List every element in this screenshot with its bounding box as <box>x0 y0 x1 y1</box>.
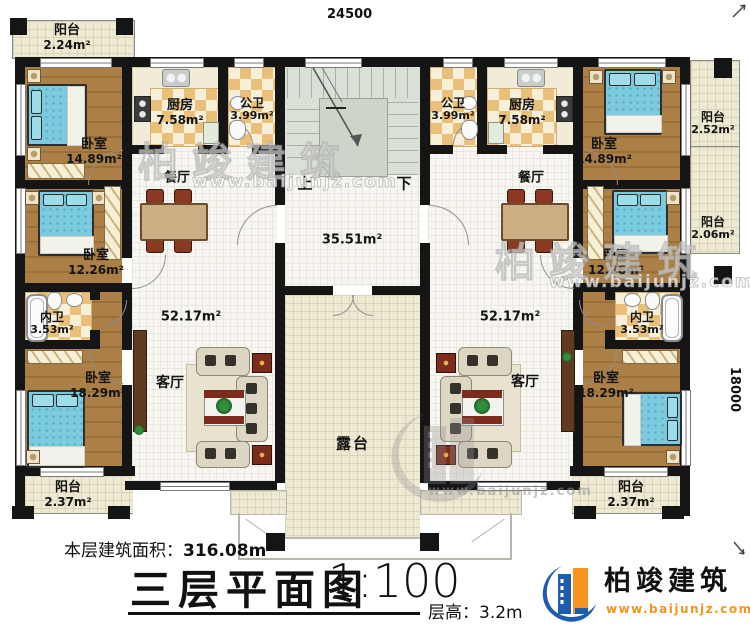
brand-name: 柏竣建筑 <box>604 568 732 595</box>
room-area: 3.53m² <box>620 325 663 337</box>
wall-segment <box>573 283 690 292</box>
wall-segment <box>218 57 228 154</box>
room-label-r-balcony2: 阳台 2.06m² <box>691 216 734 242</box>
room-area: 52.17m² <box>480 311 540 326</box>
wall-segment <box>122 180 132 258</box>
window <box>504 58 558 68</box>
wall-segment <box>573 180 583 258</box>
nightstand <box>27 147 41 161</box>
window <box>150 58 204 68</box>
pillow <box>31 116 42 140</box>
pillow <box>634 73 656 86</box>
wall-segment <box>372 286 420 295</box>
coffee-table-band <box>462 390 502 398</box>
sink <box>624 293 641 307</box>
balcony-pillar <box>714 266 732 284</box>
room-label-r-dining: 餐厅 <box>518 172 544 187</box>
balcony-pillar <box>108 506 130 519</box>
bathtub <box>661 294 683 342</box>
pillow <box>66 194 87 206</box>
wall-segment <box>122 288 132 350</box>
wall-segment <box>420 57 430 154</box>
floor-plan: 阳台 2.24m² 卧室 14.89m² 厨房 7.58m² 公卫 3.99m²… <box>0 0 750 635</box>
coffee-table-band <box>204 390 244 398</box>
watermark-logo-icon <box>372 408 502 513</box>
nightstand <box>25 191 39 205</box>
room-area: 7.58m² <box>156 114 203 127</box>
sofa-pillow <box>246 423 257 434</box>
toilet <box>645 292 660 310</box>
room-label-r-bedroom3: 卧室 18.29m² <box>578 372 634 400</box>
room-label-r-balcony-b: 阳台 2.37m² <box>607 481 654 509</box>
window <box>160 482 230 491</box>
pillow <box>667 420 678 441</box>
sofa-pillow <box>205 355 216 366</box>
sofa <box>196 441 250 468</box>
wall-segment <box>90 283 100 300</box>
tv-cabinet <box>561 330 575 432</box>
bed <box>27 84 87 146</box>
room-name: 客厅 <box>511 375 539 391</box>
wall-segment <box>275 154 285 205</box>
room-name: 餐厅 <box>518 172 544 187</box>
nightstand <box>666 191 680 205</box>
room-name: 厨房 <box>156 99 203 114</box>
dimension-top: 24500 <box>327 7 372 22</box>
room-area: 14.89m² <box>576 153 632 166</box>
balcony-pillar <box>662 506 684 519</box>
room-area: 2.06m² <box>691 230 734 242</box>
pillow <box>617 194 638 206</box>
nightstand <box>662 70 676 84</box>
room-label-r-bath: 公卫 3.99m² <box>431 97 474 123</box>
window <box>681 188 691 254</box>
bed <box>604 69 662 135</box>
wall-segment <box>543 145 573 154</box>
sofa-pillow <box>225 355 236 366</box>
sofa <box>458 347 512 376</box>
dining-table <box>140 203 208 241</box>
sofa-pillow <box>450 383 461 394</box>
window <box>443 58 473 68</box>
room-label-r-balcony1: 阳台 2.52m² <box>691 111 734 137</box>
room-name: 卧室 <box>68 249 124 264</box>
room-label-l-bedroom2: 卧室 12.26m² <box>68 249 124 277</box>
room-label-l-kitchen: 厨房 7.58m² <box>156 99 203 127</box>
sofa-pillow <box>246 383 257 394</box>
wall-segment <box>122 57 132 183</box>
bed-sheet <box>606 115 662 133</box>
window <box>604 467 668 477</box>
wall-segment <box>285 286 333 295</box>
stove <box>556 96 573 122</box>
wall-segment <box>275 243 285 483</box>
plant-icon <box>562 352 572 362</box>
window <box>681 84 691 156</box>
pillow <box>609 73 631 86</box>
room-label-l-dining: 餐厅 <box>164 172 190 187</box>
room-label-terrace: 露台 <box>336 436 370 453</box>
coffee-table-band <box>204 416 244 424</box>
room-name: 卧室 <box>70 372 126 387</box>
sofa-pillow <box>487 355 498 366</box>
room-area: 2.52m² <box>691 125 734 137</box>
nightstand <box>666 450 680 464</box>
dining-table <box>501 203 569 241</box>
stair-up-label: 上 <box>297 176 312 193</box>
brand-logo: 柏竣建筑 www.baijunjz.com <box>536 560 741 630</box>
stair-down: 下 <box>396 176 411 193</box>
closet <box>622 350 678 364</box>
pillow <box>43 194 64 206</box>
room-label-l-bedroom1: 卧室 14.89m² <box>66 138 122 166</box>
chair <box>174 189 192 204</box>
wall-segment <box>420 145 453 154</box>
stair-up: 上 <box>297 176 312 193</box>
room-label-r-living-area: 52.17m² <box>480 311 540 326</box>
room-area: 3.53m² <box>30 325 73 337</box>
room-name: 厨房 <box>498 99 545 114</box>
brand-logo-icon <box>536 562 600 628</box>
room-name: 阳台 <box>607 481 654 496</box>
room-area: 2.24m² <box>43 39 90 52</box>
wall-segment <box>132 145 164 154</box>
balcony-pillar <box>574 506 596 519</box>
room-area: 18.29m² <box>578 387 634 400</box>
room-area: 12.26m² <box>588 264 644 277</box>
wall-segment <box>90 330 100 349</box>
room-label-l-wc: 内卫 3.53m² <box>30 311 73 337</box>
porch-outline <box>510 513 512 560</box>
room-area: 35.51m² <box>322 234 382 249</box>
room-name: 公卫 <box>431 97 474 110</box>
title-underline <box>128 612 420 615</box>
sink <box>66 293 83 307</box>
room-area: 52.17m² <box>161 311 221 326</box>
wall-segment <box>605 283 615 300</box>
room-name: 阳台 <box>43 24 90 39</box>
room-label-r-wc: 内卫 3.53m² <box>620 311 663 337</box>
room-name: 卧室 <box>578 372 634 387</box>
floor-height-label: 层高： <box>428 603 479 623</box>
room-label-r-bedroom2: 卧室 12.26m² <box>588 249 644 277</box>
nightstand <box>27 69 41 83</box>
room-name: 公卫 <box>230 97 273 110</box>
room-label-r-bedroom1: 卧室 14.89m² <box>576 138 632 166</box>
room-name: 客厅 <box>156 376 184 392</box>
wall-segment <box>605 330 615 349</box>
room-name: 卧室 <box>588 249 644 264</box>
room-name: 露台 <box>336 436 370 453</box>
room-area: 3.99m² <box>431 111 474 123</box>
room-area: 18.29m² <box>70 387 126 400</box>
window <box>16 84 26 156</box>
porch-outline <box>471 519 504 543</box>
room-label-l-bedroom3: 卧室 18.29m² <box>70 372 126 400</box>
porch-column <box>420 533 439 551</box>
nightstand <box>26 450 40 464</box>
room-label-l-living-area: 52.17m² <box>161 311 221 326</box>
sofa-pillow <box>467 355 478 366</box>
sofa <box>196 347 250 376</box>
plant-icon <box>134 425 144 435</box>
room-label-r-living: 客厅 <box>511 375 539 391</box>
room-name: 内卫 <box>620 311 663 324</box>
room-area: 2.37m² <box>44 496 91 509</box>
brand-url: www.baijunjz.com <box>606 602 750 616</box>
wall-segment <box>198 145 228 154</box>
balcony-pillar <box>10 18 27 35</box>
chair <box>146 189 164 204</box>
room-name: 卧室 <box>66 138 122 153</box>
pillow <box>640 194 661 206</box>
stair-down-label: 下 <box>396 176 411 193</box>
kitchen-sink <box>162 69 190 87</box>
end-table <box>436 353 456 373</box>
room-name: 阳台 <box>691 216 734 229</box>
stove <box>134 96 151 122</box>
closet <box>27 350 83 364</box>
wall-segment <box>15 340 100 349</box>
bed <box>612 190 668 254</box>
room-label-tl-balcony: 阳台 2.24m² <box>43 24 90 52</box>
toilet <box>229 120 246 140</box>
toilet <box>47 292 62 310</box>
end-table <box>252 445 272 465</box>
window <box>40 58 112 68</box>
end-table <box>252 353 272 373</box>
room-name: 阳台 <box>691 111 734 124</box>
sofa-pillow <box>246 403 257 414</box>
sofa-pillow <box>205 448 216 459</box>
room-area: 12.26m² <box>68 264 124 277</box>
kitchen-sink <box>517 69 545 87</box>
balcony-pillar <box>116 18 133 35</box>
sofa-pillow <box>225 448 236 459</box>
toilet <box>461 120 478 140</box>
pillow <box>31 90 42 114</box>
window <box>598 58 666 68</box>
room-label-l-bath: 公卫 3.99m² <box>230 97 273 123</box>
room-area: 7.58m² <box>498 114 545 127</box>
fridge <box>203 122 219 144</box>
dimension-right: 18000 <box>727 367 742 412</box>
cursor-arrow-icon <box>732 540 748 558</box>
balcony-pillar <box>12 506 34 519</box>
wall-segment <box>420 154 430 205</box>
wall-segment <box>275 57 285 154</box>
room-name: 阳台 <box>44 481 91 496</box>
room-label-hall-area: 35.51m² <box>322 234 382 249</box>
chair <box>507 189 525 204</box>
pillow <box>32 394 54 407</box>
bed-sheet <box>624 394 641 446</box>
room-name: 餐厅 <box>164 172 190 187</box>
room-label-l-living: 客厅 <box>156 376 184 392</box>
wall-segment <box>477 57 487 154</box>
window <box>40 467 104 477</box>
room-name: 内卫 <box>30 311 73 324</box>
room-label-l-balcony-b: 阳台 2.37m² <box>44 481 91 509</box>
balcony-pillar <box>714 58 732 78</box>
window <box>305 58 362 68</box>
room-area: 2.37m² <box>607 496 654 509</box>
window <box>234 58 264 68</box>
chair <box>535 189 553 204</box>
nightstand <box>589 70 603 84</box>
bed <box>38 190 94 256</box>
wall-segment <box>477 145 507 154</box>
tv-cabinet <box>133 330 147 432</box>
bed <box>622 392 682 446</box>
window <box>16 390 26 466</box>
room-name: 卧室 <box>576 138 632 153</box>
room-area: 14.89m² <box>66 153 122 166</box>
floor-height-text: 层高：3.2m <box>428 598 523 623</box>
room-label-r-kitchen: 厨房 7.58m² <box>498 99 545 127</box>
room-area: 3.99m² <box>230 111 273 123</box>
terrace-wing-left <box>230 490 287 515</box>
floor-height-value: 3.2m <box>479 603 523 623</box>
stair-direction-arrow-icon <box>290 60 410 175</box>
wall-segment <box>252 145 285 154</box>
plant-icon <box>216 398 232 414</box>
window <box>681 390 691 466</box>
pillow <box>667 397 678 418</box>
cursor-arrow-icon <box>730 3 748 23</box>
wall-segment <box>15 283 132 292</box>
